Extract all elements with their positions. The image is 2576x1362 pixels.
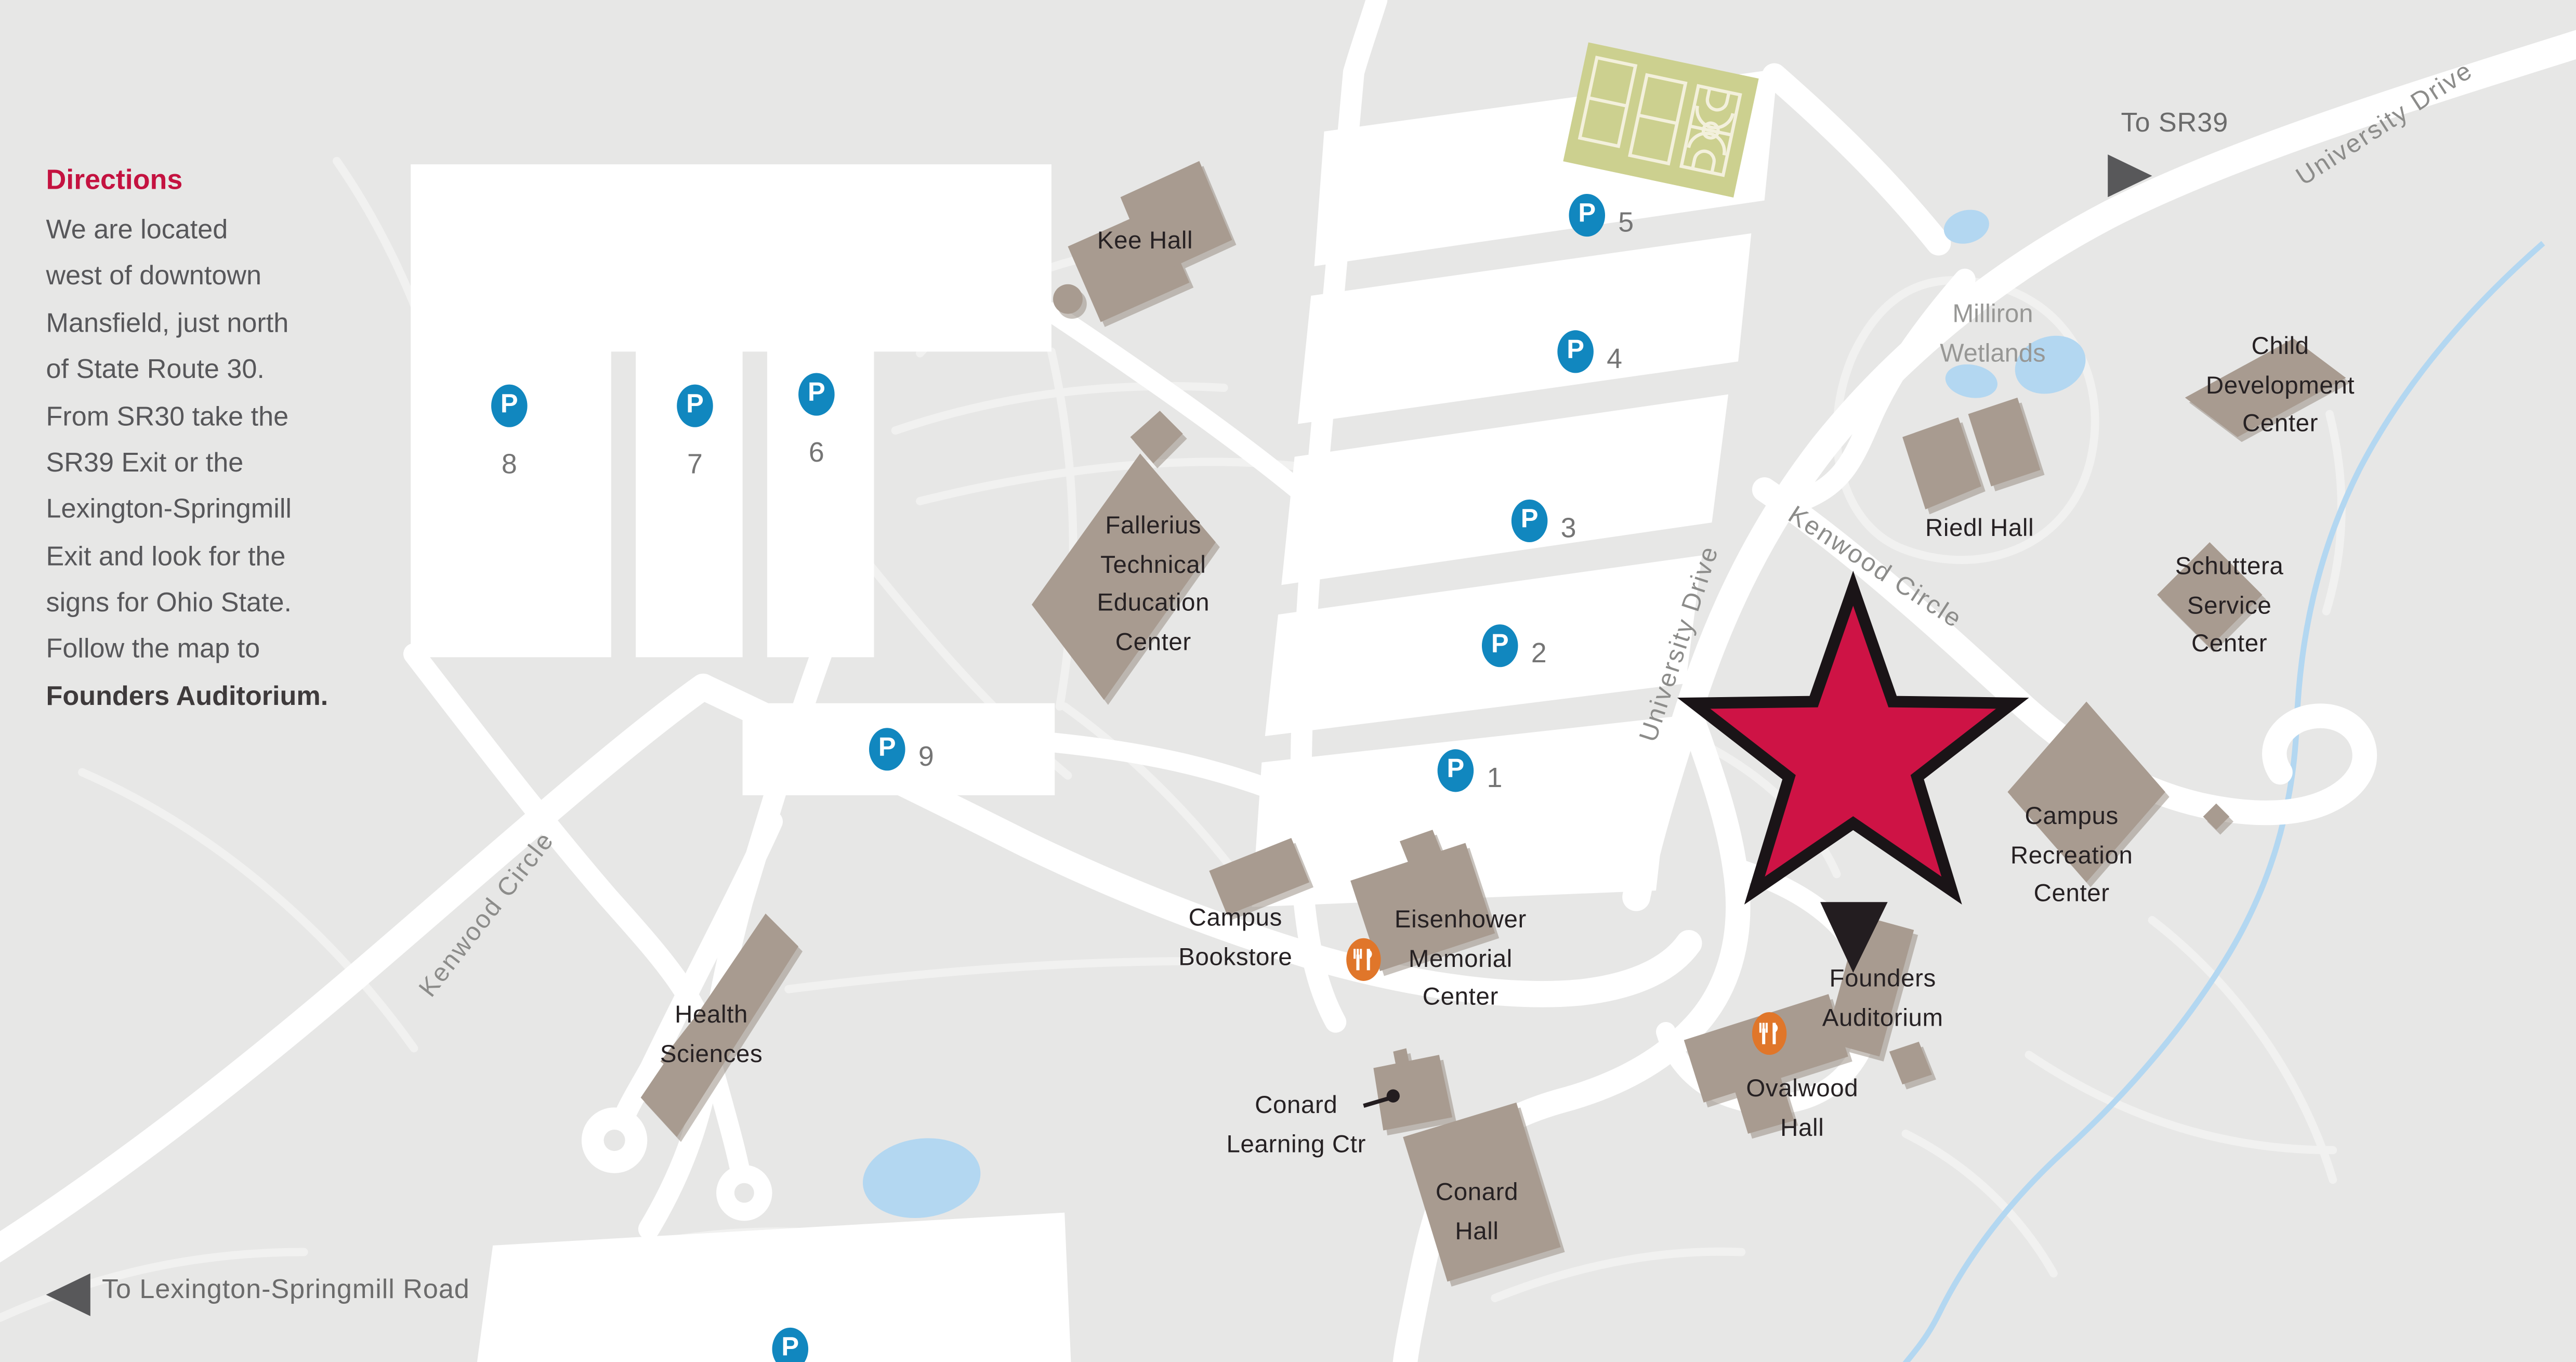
parking-number: 8	[502, 449, 517, 481]
area-label-milliron-wetlands: Milliron Wetlands	[1940, 296, 2045, 375]
campus-map: Kee HallFallerius Technical Education Ce…	[0, 0, 2576, 1362]
parking-icon-lot-5: P	[1569, 194, 1605, 237]
building-label-eisenhower-memorial-center: Eisenhower Memorial Center	[1395, 901, 1527, 1018]
road-label: University Drive	[1635, 542, 1727, 746]
parking-icon-lot-3: P	[1512, 500, 1548, 542]
parking-icon-lot-1: P	[1438, 749, 1474, 792]
dining-icon	[1346, 937, 1382, 983]
building-label-health-sciences: Health Sciences	[660, 996, 763, 1074]
parking-number: 4	[1607, 344, 1622, 376]
directions-body: We are located west of downtown Mansfiel…	[46, 207, 459, 673]
building-label-schuttera-service-center: Schuttera Service Center	[2175, 548, 2284, 665]
parking-number: 3	[1561, 513, 1576, 545]
parking-icon-lot-extra: P	[772, 1328, 809, 1362]
building-label-conard-hall: Conard Hall	[1436, 1174, 1518, 1252]
building-label-founders-auditorium: Founders Auditorium	[1822, 960, 1943, 1038]
directions-destination: Founders Auditorium.	[46, 673, 459, 720]
parking-icon-lot-7: P	[677, 385, 713, 427]
arrow-right-icon	[2108, 154, 2152, 197]
building-label-child-development-center: Child Development Center	[2206, 328, 2355, 444]
external-label-to-sr39: To SR39	[2121, 109, 2228, 140]
parking-icon-lot-8: P	[491, 385, 528, 427]
parking-icon-lot-2: P	[1482, 624, 1518, 667]
directions-heading: Directions	[46, 164, 459, 197]
arrow-left-icon	[46, 1274, 90, 1316]
building-label-campus-bookstore: Campus Bookstore	[1178, 899, 1292, 977]
building-label-ovalwood-hall: Ovalwood Hall	[1746, 1070, 1858, 1148]
building-label-conard-learning-ctr: Conard Learning Ctr	[1227, 1086, 1366, 1164]
road-label: University Drive	[2292, 57, 2479, 193]
parking-number: 6	[809, 437, 824, 470]
building-label-campus-recreation-center: Campus Recreation Center	[2010, 797, 2133, 914]
parking-icon-lot-9: P	[869, 728, 905, 770]
building-label-kee-hall: Kee Hall	[1097, 222, 1193, 261]
building-label-fallerius-technical-education-center: Fallerius Technical Education Center	[1097, 507, 1210, 662]
parking-number: 9	[918, 741, 934, 774]
building-label-riedl-hall: Riedl Hall	[1925, 509, 2034, 548]
map-stage: Kee HallFallerius Technical Education Ce…	[0, 0, 2576, 1362]
external-label-to-lexington-springmill-road: To Lexington-Springmill Road	[102, 1275, 470, 1306]
parking-icon-lot-6: P	[798, 373, 835, 415]
parking-number: 5	[1618, 207, 1634, 240]
directions-panel: Directions We are located west of downto…	[46, 164, 459, 720]
dining-icon	[1751, 1011, 1788, 1056]
parking-number: 2	[1531, 637, 1547, 670]
road-label: Kenwood Circle	[414, 827, 561, 1003]
parking-icon-lot-4: P	[1557, 330, 1594, 373]
parking-number: 1	[1487, 763, 1502, 795]
parking-number: 7	[687, 449, 703, 481]
